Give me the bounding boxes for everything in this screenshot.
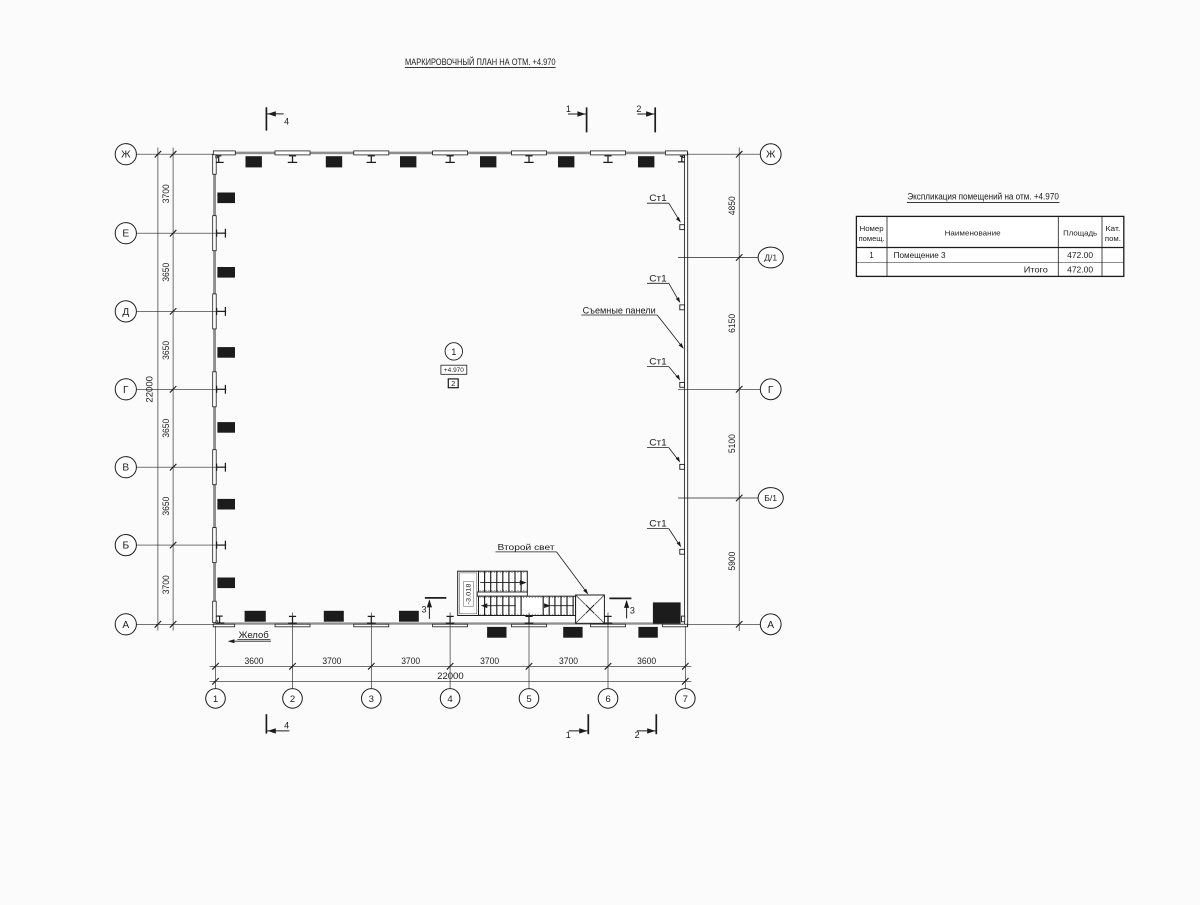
svg-text:2: 2 — [635, 730, 640, 740]
svg-text:3650: 3650 — [161, 263, 171, 282]
svg-text:Второй свет: Второй свет — [498, 542, 555, 552]
svg-text:472.00: 472.00 — [1067, 251, 1094, 260]
svg-text:Ст1: Ст1 — [649, 438, 667, 448]
svg-text:3700: 3700 — [559, 656, 578, 666]
svg-text:3650: 3650 — [161, 341, 171, 360]
svg-text:3700: 3700 — [161, 575, 171, 594]
svg-text:+4.970: +4.970 — [444, 367, 464, 374]
svg-text:4850: 4850 — [727, 196, 737, 215]
svg-text:1: 1 — [869, 251, 873, 260]
svg-text:5100: 5100 — [727, 434, 737, 453]
svg-text:2: 2 — [451, 379, 455, 388]
svg-text:Ж: Ж — [121, 150, 131, 161]
svg-text:Е: Е — [122, 229, 129, 240]
svg-text:пом.: пом. — [1105, 234, 1121, 243]
svg-text:Кат.: Кат. — [1105, 224, 1120, 233]
svg-text:7: 7 — [683, 694, 688, 705]
svg-text:22000: 22000 — [145, 376, 155, 403]
svg-text:Наименование: Наименование — [945, 229, 1001, 238]
svg-text:2: 2 — [290, 694, 295, 705]
svg-text:3: 3 — [630, 606, 635, 616]
svg-text:Ст1: Ст1 — [649, 357, 667, 367]
svg-text:Ст1: Ст1 — [649, 193, 667, 203]
svg-text:Номер: Номер — [860, 224, 884, 233]
svg-text:3600: 3600 — [637, 656, 656, 666]
svg-text:1: 1 — [566, 104, 571, 114]
svg-text:3650: 3650 — [161, 497, 171, 516]
svg-text:6150: 6150 — [727, 314, 737, 333]
svg-text:3: 3 — [369, 694, 374, 705]
svg-text:Г: Г — [768, 385, 774, 396]
svg-text:5: 5 — [526, 694, 531, 705]
svg-text:Съемные панели: Съемные панели — [583, 305, 656, 315]
svg-text:Помещение 3: Помещение 3 — [894, 251, 946, 260]
svg-text:Ст1: Ст1 — [649, 273, 667, 283]
svg-text:-3.018: -3.018 — [466, 583, 473, 605]
svg-text:В: В — [122, 463, 129, 474]
svg-text:1: 1 — [213, 694, 218, 705]
svg-text:МАРКИРОВОЧНЫЙ ПЛАН НА ОТМ. +4.: МАРКИРОВОЧНЫЙ ПЛАН НА ОТМ. +4.970 — [405, 56, 556, 67]
svg-text:3700: 3700 — [322, 656, 341, 666]
svg-text:помещ.: помещ. — [859, 234, 885, 243]
svg-text:Д: Д — [122, 307, 129, 318]
svg-text:Итого: Итого — [1024, 265, 1049, 274]
svg-text:1: 1 — [566, 730, 571, 740]
svg-text:3600: 3600 — [245, 656, 264, 666]
svg-text:6: 6 — [605, 694, 610, 705]
svg-text:3700: 3700 — [480, 656, 499, 666]
svg-text:Площадь: Площадь — [1063, 229, 1097, 238]
svg-text:Экспликация помещений на отм.: Экспликация помещений на отм. +4.970 — [907, 192, 1059, 202]
svg-text:4: 4 — [447, 694, 453, 705]
svg-text:Ж: Ж — [766, 150, 776, 161]
svg-text:5900: 5900 — [727, 552, 737, 571]
svg-text:3700: 3700 — [161, 184, 171, 203]
svg-text:3650: 3650 — [161, 419, 171, 438]
svg-text:472.00: 472.00 — [1067, 265, 1094, 274]
svg-text:Ст1: Ст1 — [649, 519, 667, 529]
svg-text:22000: 22000 — [437, 671, 464, 681]
svg-text:Г: Г — [123, 385, 129, 396]
svg-text:А: А — [122, 620, 129, 631]
svg-text:Б: Б — [122, 541, 129, 552]
svg-text:Д/1: Д/1 — [764, 253, 777, 263]
svg-text:А: А — [767, 620, 774, 631]
svg-text:Б/1: Б/1 — [764, 493, 777, 503]
svg-text:3: 3 — [421, 605, 426, 615]
svg-text:3700: 3700 — [401, 656, 420, 666]
svg-text:Желоб: Желоб — [239, 630, 269, 640]
svg-text:4: 4 — [284, 117, 289, 127]
svg-text:1: 1 — [451, 347, 456, 357]
svg-text:2: 2 — [636, 104, 641, 114]
svg-text:4: 4 — [284, 721, 289, 731]
